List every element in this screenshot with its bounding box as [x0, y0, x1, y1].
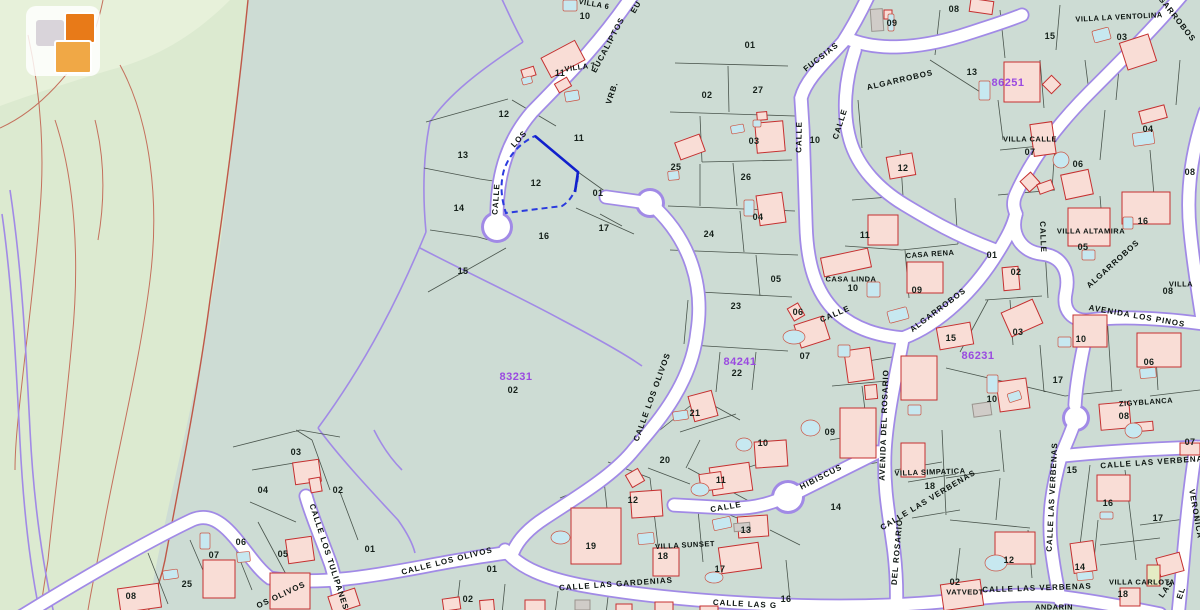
swimming-pool: [736, 438, 752, 451]
building: [1061, 169, 1094, 199]
building: [870, 9, 884, 32]
swimming-pool: [1077, 571, 1094, 580]
building: [285, 536, 314, 563]
building: [901, 356, 937, 400]
swimming-pool: [162, 569, 178, 580]
building: [630, 490, 663, 518]
building: [734, 522, 751, 531]
swimming-pool: [979, 81, 990, 100]
swimming-pool: [1123, 217, 1133, 229]
building: [1120, 588, 1140, 606]
swimming-pool: [987, 375, 998, 393]
building: [1147, 565, 1160, 586]
map-canvas[interactable]: 1011121311120114161715010227031025260424…: [0, 0, 1200, 610]
building: [864, 385, 877, 400]
swimming-pool: [801, 420, 820, 436]
swimming-pool: [200, 533, 210, 549]
map-graphics: [0, 0, 1200, 610]
building: [940, 579, 983, 610]
swimming-pool: [744, 200, 754, 216]
building: [886, 153, 915, 179]
swimming-pool: [705, 572, 723, 583]
swimming-pool: [867, 282, 880, 297]
building: [1002, 266, 1020, 290]
building: [203, 560, 235, 598]
swimming-pool: [1125, 423, 1142, 438]
building: [754, 440, 788, 468]
app-logo: [26, 6, 100, 76]
building: [757, 112, 768, 121]
swimming-pool: [563, 0, 577, 11]
building: [480, 599, 495, 610]
swimming-pool: [1140, 367, 1157, 378]
building: [575, 600, 590, 610]
building: [309, 477, 322, 493]
building: [270, 573, 310, 609]
building: [969, 0, 994, 15]
building: [756, 192, 786, 225]
building: [1073, 315, 1107, 347]
building: [525, 600, 545, 610]
swimming-pool: [1058, 337, 1071, 347]
swimming-pool: [1053, 152, 1069, 168]
swimming-pool: [1082, 250, 1095, 260]
building: [840, 408, 876, 458]
swimming-pool: [691, 483, 709, 496]
building: [718, 542, 761, 573]
building: [1030, 122, 1056, 157]
swimming-pool: [908, 405, 921, 415]
building: [653, 548, 679, 576]
swimming-pool: [888, 14, 894, 31]
building: [1137, 333, 1181, 367]
building: [442, 597, 461, 610]
swimming-pool: [668, 171, 680, 181]
swimming-pool: [672, 410, 688, 421]
building: [868, 215, 898, 245]
swimming-pool: [985, 555, 1007, 571]
swimming-pool: [838, 345, 850, 357]
building: [1180, 443, 1200, 455]
building: [616, 604, 632, 610]
swimming-pool: [1132, 131, 1155, 147]
building: [1068, 208, 1110, 246]
logo-amber-square: [54, 40, 92, 74]
swimming-pool: [753, 120, 761, 127]
building: [655, 602, 673, 610]
swimming-pool: [638, 532, 655, 544]
building: [901, 443, 925, 477]
swimming-pool: [783, 330, 805, 344]
building: [1097, 475, 1130, 501]
swimming-pool: [237, 551, 251, 562]
building: [700, 606, 718, 610]
building: [571, 508, 621, 564]
building: [1004, 62, 1040, 102]
building: [1070, 541, 1097, 574]
building: [907, 262, 943, 293]
swimming-pool: [564, 90, 580, 102]
swimming-pool: [1100, 512, 1113, 519]
building: [972, 402, 992, 417]
swimming-pool: [551, 531, 570, 544]
